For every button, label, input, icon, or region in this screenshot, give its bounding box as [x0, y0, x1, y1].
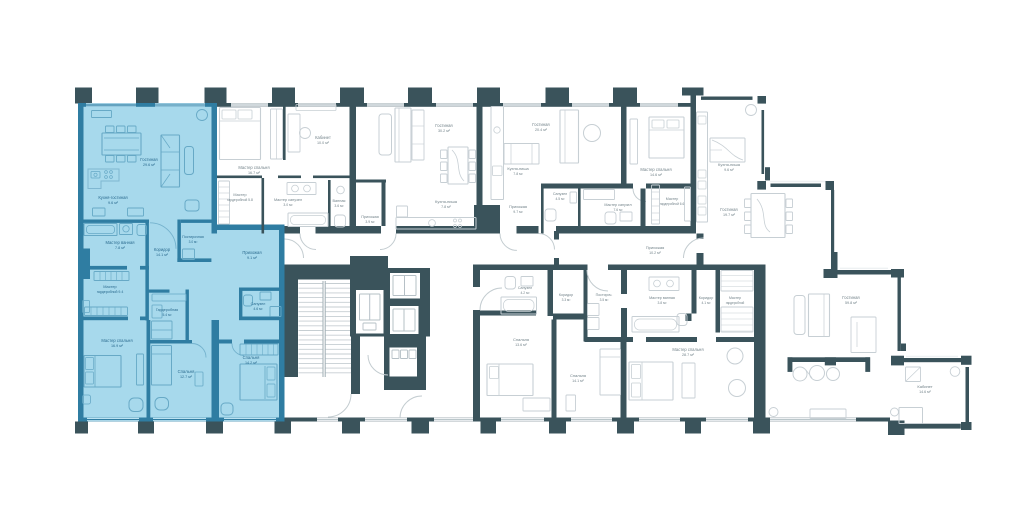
svg-text:Кухня-ниша: Кухня-ниша — [507, 166, 529, 171]
svg-text:28.7 м²: 28.7 м² — [682, 353, 695, 357]
svg-text:7.6 м²: 7.6 м² — [614, 208, 624, 212]
svg-text:Прихожая: Прихожая — [361, 215, 379, 219]
svg-text:Гостиная: Гостиная — [140, 157, 157, 162]
svg-text:Коридор: Коридор — [154, 247, 171, 252]
svg-text:4.5 м²: 4.5 м² — [556, 197, 566, 201]
svg-text:Гардеробная: Гардеробная — [156, 308, 178, 312]
svg-text:Кабинет: Кабинет — [315, 135, 331, 140]
svg-text:14.1 м²: 14.1 м² — [156, 253, 169, 257]
svg-text:16.9 м²: 16.9 м² — [111, 344, 124, 348]
svg-text:4.6 м²: 4.6 м² — [253, 307, 263, 311]
svg-text:Гостиная: Гостиная — [435, 123, 452, 128]
svg-text:59.8 м²: 59.8 м² — [845, 301, 858, 305]
svg-text:3.0 м²: 3.0 м² — [189, 240, 199, 244]
svg-text:Гостиная: Гостиная — [842, 295, 859, 300]
svg-text:Коридор: Коридор — [559, 293, 573, 297]
svg-text:Спальня: Спальня — [178, 369, 195, 374]
svg-text:4.2 м²: 4.2 м² — [521, 291, 531, 295]
svg-text:14.6 м²: 14.6 м² — [650, 173, 663, 177]
svg-text:16.7 м²: 16.7 м² — [248, 171, 261, 175]
svg-text:14.1 м²: 14.1 м² — [572, 379, 584, 383]
svg-text:9.7 м²: 9.7 м² — [513, 210, 523, 214]
svg-text:14.2 м²: 14.2 м² — [245, 361, 258, 365]
svg-text:Мастер: Мастер — [103, 284, 116, 289]
svg-text:10.2 м²: 10.2 м² — [649, 251, 661, 255]
svg-text:Кухня-гостиная: Кухня-гостиная — [98, 195, 127, 200]
svg-text:Мастер: Мастер — [233, 193, 246, 197]
svg-text:Мастер ванная: Мастер ванная — [105, 240, 134, 245]
svg-text:Кабинет: Кабинет — [917, 384, 932, 389]
svg-text:3.5 м²: 3.5 м² — [600, 298, 610, 302]
svg-text:Мастер: Мастер — [729, 296, 741, 300]
svg-text:Санузел: Санузел — [553, 192, 567, 196]
svg-text:9.6 м²: 9.6 м² — [108, 201, 119, 205]
svg-text:4.1 м²: 4.1 м² — [702, 301, 712, 305]
svg-text:30.2 м²: 30.2 м² — [438, 129, 451, 133]
svg-text:13.6 м²: 13.6 м² — [515, 343, 527, 347]
svg-text:Мастер санузел: Мастер санузел — [274, 198, 302, 202]
svg-text:гардеробной: гардеробной — [726, 301, 745, 305]
svg-text:Мастер спальня: Мастер спальня — [238, 165, 269, 170]
svg-text:7.8 м²: 7.8 м² — [513, 172, 523, 176]
svg-text:Кухня-ниша: Кухня-ниша — [435, 199, 458, 204]
svg-text:Кухня-ниша: Кухня-ниша — [718, 162, 741, 167]
svg-text:Мастер ванная: Мастер ванная — [649, 296, 675, 300]
svg-text:гардеробной 5.8: гардеробной 5.8 — [227, 198, 253, 202]
svg-text:Гостиная: Гостиная — [720, 207, 737, 212]
svg-text:Прихожая: Прихожая — [646, 245, 665, 250]
svg-text:Постирочная: Постирочная — [182, 235, 204, 239]
svg-text:3.8 м²: 3.8 м² — [658, 301, 668, 305]
svg-text:3.6 м²: 3.6 м² — [334, 204, 344, 208]
svg-text:3.0 м²: 3.0 м² — [283, 203, 293, 207]
svg-text:Ванная: Ванная — [332, 199, 345, 203]
svg-text:Санузел: Санузел — [518, 286, 532, 290]
svg-text:9.1 м²: 9.1 м² — [247, 256, 258, 260]
svg-text:Мастер: Мастер — [666, 197, 678, 201]
svg-text:Коридор: Коридор — [699, 296, 714, 300]
svg-text:19.7 м²: 19.7 м² — [723, 213, 736, 217]
svg-text:Мастер спальня: Мастер спальня — [101, 338, 132, 343]
svg-text:3.3 м²: 3.3 м² — [562, 298, 572, 302]
svg-text:20.4 м²: 20.4 м² — [535, 128, 548, 132]
svg-text:29.6 м²: 29.6 м² — [143, 163, 156, 167]
svg-text:Прихожая: Прихожая — [242, 250, 261, 255]
svg-text:Мастер спальня: Мастер спальня — [672, 347, 703, 352]
svg-text:Прихожая: Прихожая — [509, 204, 527, 209]
svg-text:14.6 м²: 14.6 м² — [919, 390, 931, 394]
svg-text:Спальня: Спальня — [570, 373, 586, 378]
svg-text:Мастер санузел: Мастер санузел — [604, 203, 631, 207]
svg-text:гардеробной 6.6: гардеробной 6.6 — [660, 202, 685, 206]
svg-text:Гостиная: Гостиная — [532, 122, 549, 127]
svg-text:гардеробной 9.4: гардеробной 9.4 — [97, 290, 124, 294]
svg-text:3.9 м²: 3.9 м² — [365, 220, 375, 224]
svg-text:Спальня: Спальня — [243, 355, 260, 360]
svg-text:Санузел: Санузел — [251, 302, 266, 306]
svg-text:12.7 м²: 12.7 м² — [180, 375, 193, 379]
svg-text:9.6 м²: 9.6 м² — [724, 168, 734, 172]
svg-text:Спальня: Спальня — [513, 337, 529, 342]
svg-text:Мастер спальня: Мастер спальня — [640, 167, 671, 172]
svg-text:7.8 м²: 7.8 м² — [115, 246, 126, 250]
svg-text:10.0 м²: 10.0 м² — [317, 141, 330, 145]
svg-text:Постироч.: Постироч. — [596, 293, 613, 297]
svg-text:5.4 м²: 5.4 м² — [163, 313, 173, 317]
svg-text:7.8 м²: 7.8 м² — [441, 205, 451, 209]
